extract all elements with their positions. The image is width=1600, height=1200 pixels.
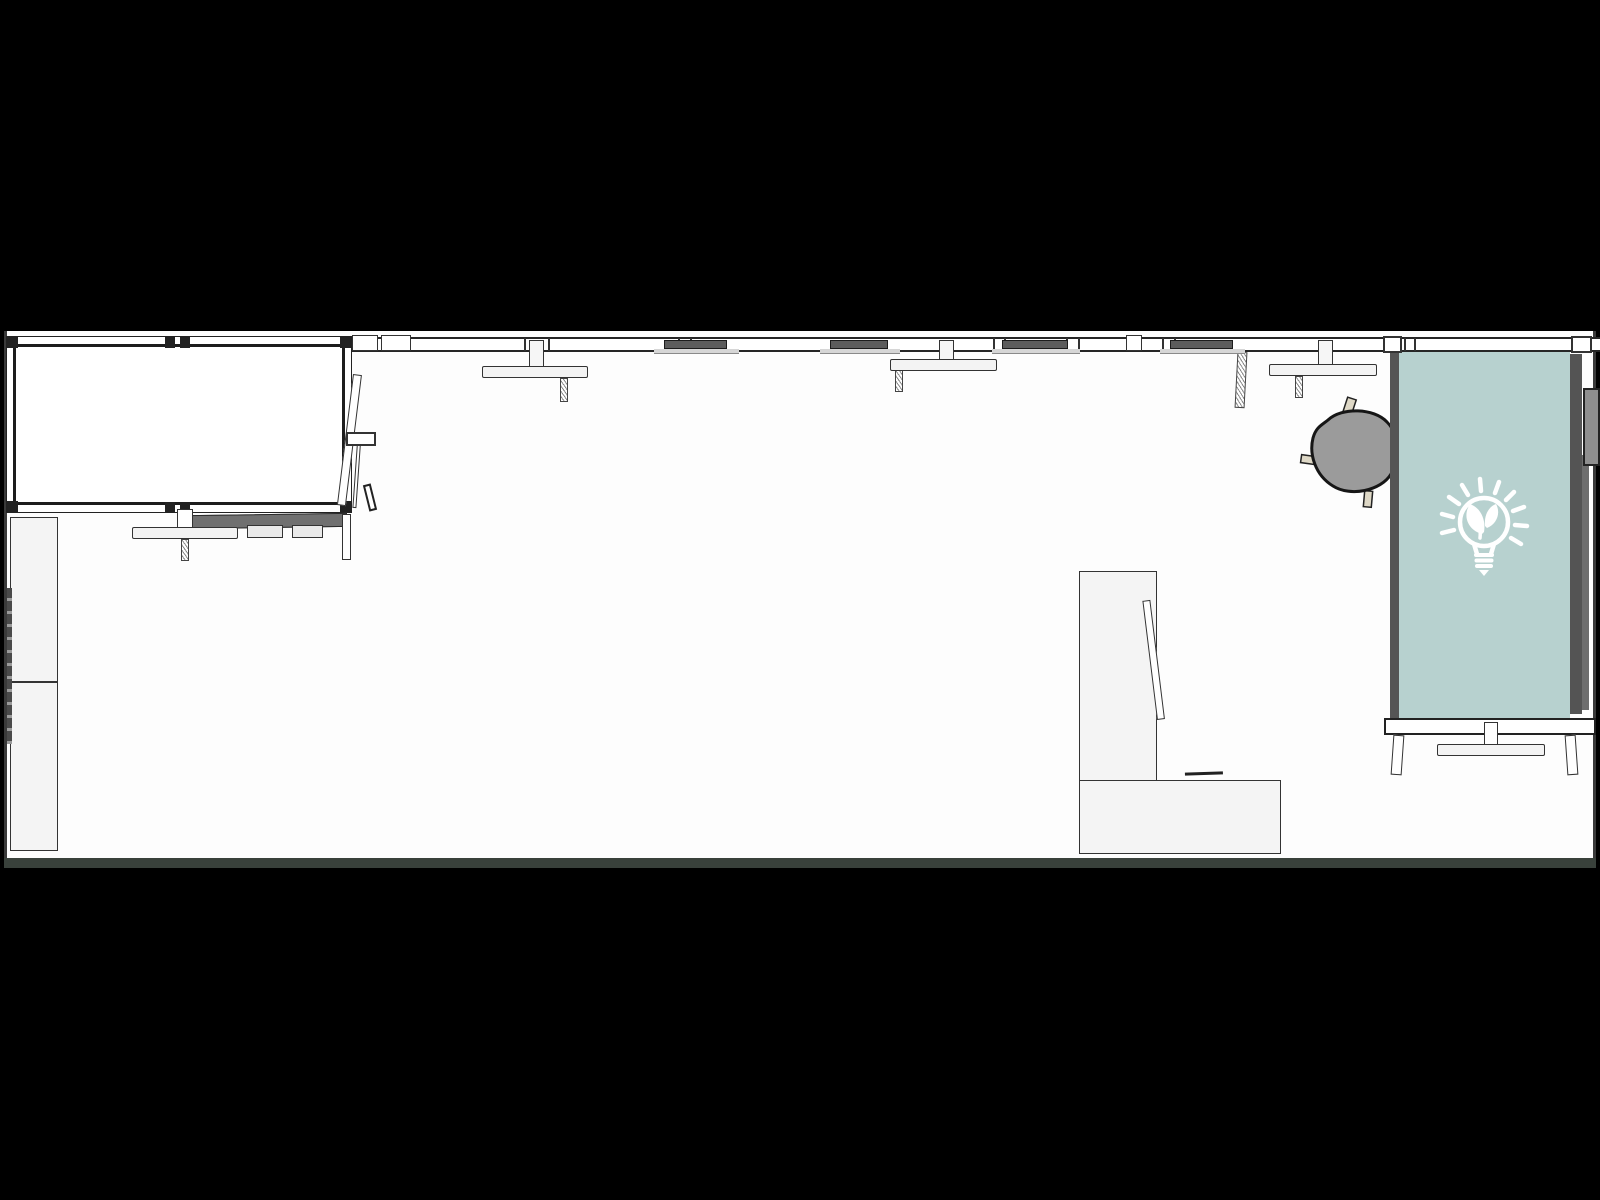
counter-wedge (1185, 771, 1223, 779)
desk-wall-connector (529, 340, 544, 369)
frame-corner-connector (6, 501, 18, 513)
panel-frame-right-outer (1582, 455, 1589, 710)
panel-post-top-left (1383, 336, 1402, 353)
frame-mid-connector (165, 337, 175, 348)
desk-leg (181, 539, 189, 561)
display-shelf (1160, 349, 1245, 354)
bottom-wall (4, 858, 1596, 868)
wall-desk[interactable] (482, 366, 588, 378)
door-handle[interactable] (346, 432, 376, 446)
chair-leg (1363, 491, 1372, 508)
frame-mid-connector (180, 337, 190, 348)
display-shelf (820, 349, 900, 354)
panel-post-top-right (1571, 336, 1592, 353)
l-counter-horizontal[interactable] (1079, 780, 1281, 854)
wall-cabinet-right[interactable] (1583, 388, 1600, 466)
display-shelf (992, 349, 1080, 354)
wall-desk[interactable] (890, 359, 997, 371)
eco-lightbulb-icon (1432, 474, 1536, 586)
frame-mid-connector (165, 502, 175, 513)
wall-mounted-display[interactable] (664, 340, 727, 349)
panel-frame-left (1390, 352, 1399, 718)
wall-joint-tick (1414, 338, 1416, 351)
floor-plan-canvas (0, 0, 1600, 1200)
chair-seat (1312, 411, 1398, 492)
desk-leg (1295, 376, 1303, 398)
cabinet-rail (7, 588, 12, 744)
desk-tray[interactable] (292, 525, 323, 538)
wall-junction-box (352, 335, 378, 351)
frame-corner-connector (340, 336, 352, 348)
wall-joint-tick (1404, 338, 1406, 351)
wall-junction-box (381, 335, 411, 351)
wall-mounted-display[interactable] (1170, 340, 1233, 349)
wall-mounted-display[interactable] (1002, 340, 1068, 349)
wall-desk[interactable] (132, 527, 238, 539)
desk-leg (342, 514, 351, 560)
desk-tray[interactable] (247, 525, 283, 538)
display-shelf (654, 349, 739, 354)
storage-cabinet-upper[interactable] (10, 517, 58, 682)
desk-leg (560, 378, 568, 402)
frame-corner-connector (6, 336, 18, 348)
top-wall (338, 337, 1600, 352)
storage-cabinet-lower[interactable] (10, 682, 58, 851)
wall-desk[interactable] (1437, 744, 1545, 756)
wall-desk[interactable] (1269, 364, 1377, 376)
wall-junction-box (1126, 335, 1142, 351)
wall-joint-tick (548, 338, 550, 351)
meeting-room-interior (13, 344, 345, 505)
wall-mounted-display[interactable] (830, 340, 888, 349)
panel-frame-right (1570, 354, 1582, 714)
wall-joint-tick (524, 338, 526, 351)
